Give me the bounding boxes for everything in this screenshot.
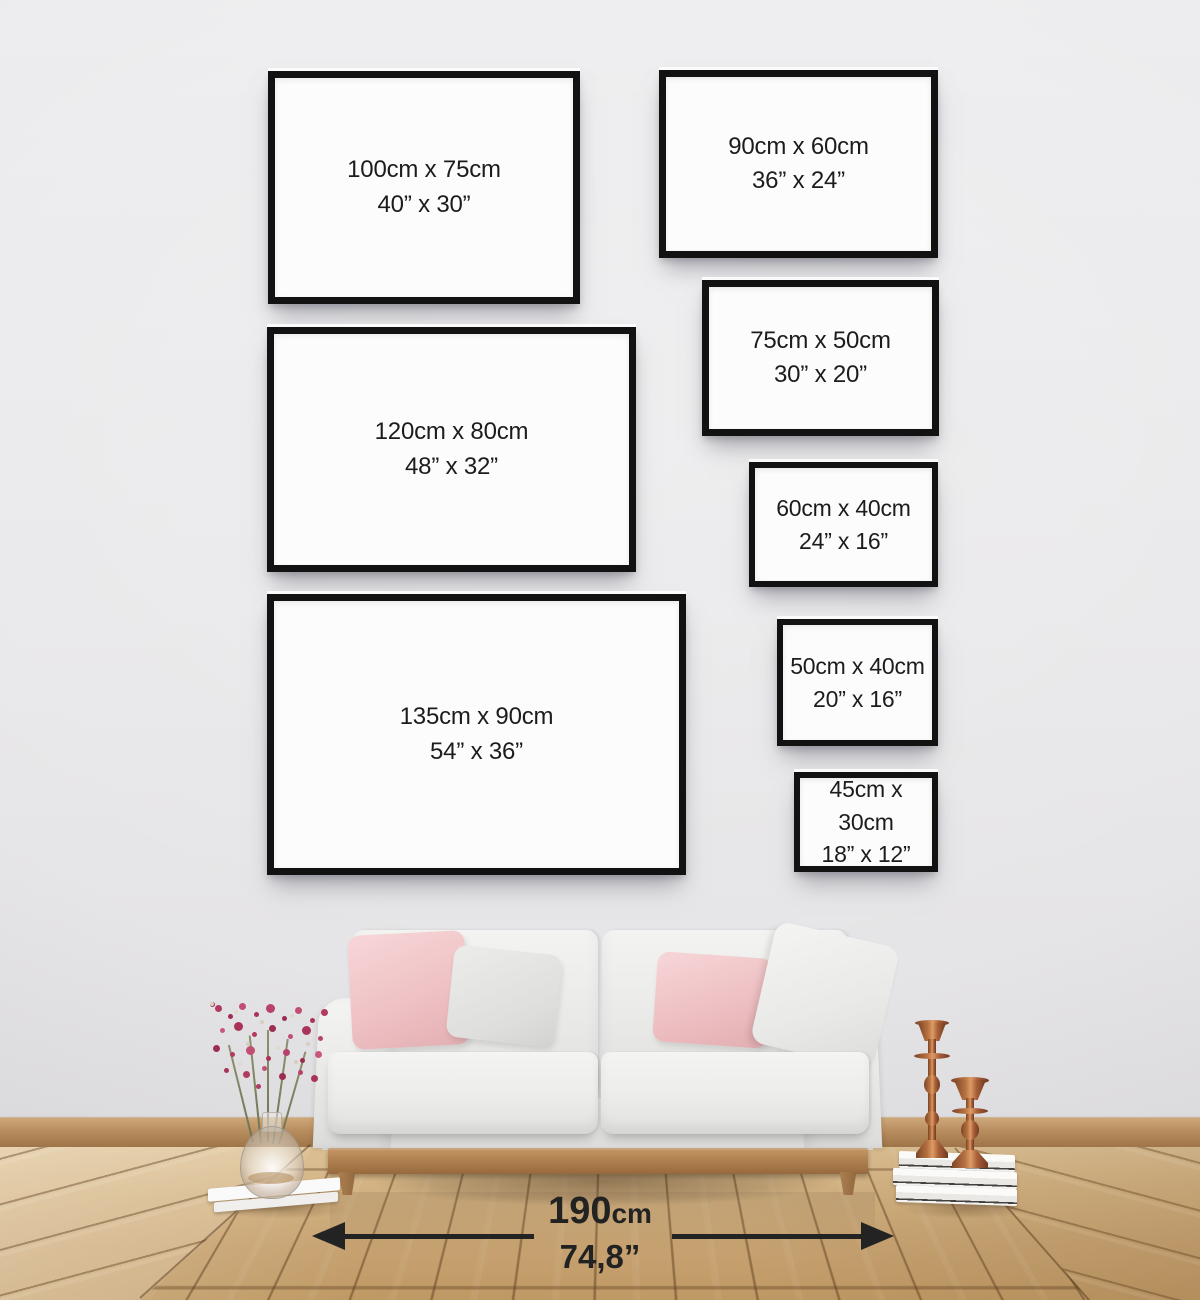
copper-candlestick-short xyxy=(950,1080,990,1168)
frame-size-cm: 60cm x 40cm xyxy=(776,492,911,525)
pillow-gray-left xyxy=(445,945,562,1048)
size-frame-100x75: 100cm x 75cm 40” x 30” xyxy=(268,71,580,304)
sofa xyxy=(310,925,885,1195)
frame-size-inches: 20” x 16” xyxy=(813,683,902,716)
frame-size-cm: 75cm x 50cm xyxy=(750,324,891,358)
flower-buds xyxy=(210,1002,214,1006)
measure-arrowhead-right xyxy=(861,1222,894,1250)
size-guide-scene: 100cm x 75cm 40” x 30” 120cm x 80cm 48” … xyxy=(0,0,1200,1300)
frame-size-cm: 120cm x 80cm xyxy=(375,415,529,449)
size-frame-90x60: 90cm x 60cm 36” x 24” xyxy=(659,70,938,258)
frame-size-inches: 40” x 30” xyxy=(378,188,471,222)
frame-size-cm: 45cm x 30cm xyxy=(800,773,932,838)
frame-size-cm: 50cm x 40cm xyxy=(790,650,925,683)
size-frame-75x50: 75cm x 50cm 30” x 20” xyxy=(702,280,939,436)
size-frame-120x80: 120cm x 80cm 48” x 32” xyxy=(267,327,636,572)
frame-size-cm: 135cm x 90cm xyxy=(400,700,554,734)
frame-size-inches: 24” x 16” xyxy=(799,525,888,558)
sofa-seat-cushion-right xyxy=(601,1052,869,1134)
sofa-wood-rail xyxy=(328,1148,868,1174)
frame-size-inches: 54” x 36” xyxy=(430,735,523,769)
frame-size-cm: 100cm x 75cm xyxy=(347,153,501,187)
sofa-seat-cushion-left xyxy=(328,1052,598,1134)
sofa-width-cm-label: 190cm xyxy=(450,1190,750,1233)
sofa-leg-right xyxy=(837,1172,859,1195)
copper-candlestick-tall xyxy=(914,1023,950,1158)
frame-size-inches: 18” x 12” xyxy=(822,838,911,871)
sofa-width-inches-label: 74,8” xyxy=(450,1238,750,1276)
size-frame-60x40: 60cm x 40cm 24” x 16” xyxy=(749,462,938,587)
frame-size-inches: 36” x 24” xyxy=(752,164,845,198)
size-frame-45x30: 45cm x 30cm 18” x 12” xyxy=(794,772,938,872)
vase-water-line xyxy=(248,1172,294,1184)
frame-size-cm: 90cm x 60cm xyxy=(728,130,869,164)
frame-size-inches: 30” x 20” xyxy=(774,358,867,392)
frame-size-inches: 48” x 32” xyxy=(405,450,498,484)
size-frame-50x40: 50cm x 40cm 20” x 16” xyxy=(777,619,938,746)
size-frame-135x90: 135cm x 90cm 54” x 36” xyxy=(267,594,686,875)
